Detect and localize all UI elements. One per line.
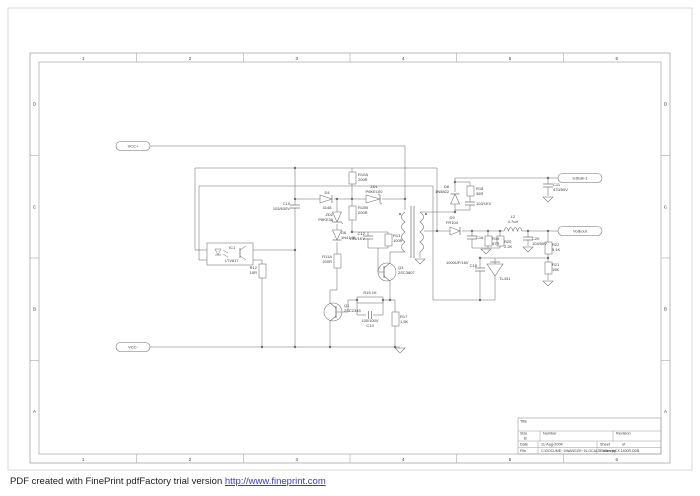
component-label-D9: FR104	[446, 220, 459, 225]
component-label-TL431: TL431	[499, 276, 511, 281]
zone-row-right: A	[664, 409, 667, 414]
port-vcc-plus: VCC+	[116, 142, 150, 151]
component-label-R17: 1.5K	[400, 319, 409, 324]
component-label-R11A: 200R	[322, 259, 332, 264]
component-label-IC1: IC1	[229, 245, 236, 250]
zone-col-top: 4	[402, 56, 405, 61]
component-label-R15: R15 1K	[363, 290, 377, 295]
component-label-Q3: 2SC3807	[398, 270, 415, 275]
zone-col-bottom: 4	[402, 457, 405, 462]
component-label-IC1v: LTV817	[225, 258, 239, 263]
zone-col-top: 1	[82, 56, 85, 61]
ground-symbol	[395, 348, 405, 353]
component-label-R19: 47R	[492, 241, 499, 246]
component-label-ZD1: P6KE100	[366, 189, 384, 194]
size-value: B	[524, 436, 527, 441]
port-out-stab: IcStab-1	[558, 174, 602, 183]
file-label: File	[520, 449, 526, 453]
component-label-L2: 4.7uH	[508, 219, 519, 224]
zone-col-bottom: 2	[189, 457, 192, 462]
component-label-Q1: 2SC2345	[344, 308, 361, 313]
component-label-R12: 10R	[250, 270, 257, 275]
resistor-R13	[385, 234, 392, 246]
resistor-R21	[545, 262, 552, 274]
component-label-R18: 36R	[476, 191, 483, 196]
date-label: Date	[520, 443, 528, 447]
component-label-C11: 470/50V	[553, 187, 568, 192]
schematic-sheet: 112233445566DDCCBBAATitleSizeBNumberRevi…	[0, 0, 700, 496]
capacitor-Csnub	[465, 202, 475, 205]
zone-col-bottom: 1	[82, 457, 85, 462]
footer: PDF created with FinePrint pdfFactory tr…	[10, 476, 326, 487]
component-label-ZD2: P6KE30	[318, 217, 333, 222]
inductor-L2	[504, 228, 522, 232]
zone-col-top: 2	[189, 56, 192, 61]
resistor-R15	[357, 297, 383, 303]
component-label-C16v: 1000UF/16V	[446, 260, 469, 265]
zone-row-left: C	[33, 204, 37, 209]
component-label-Csnub: 103/1KV	[476, 201, 492, 206]
ground-symbol	[523, 247, 533, 252]
component-label-C20: 104/50V	[532, 241, 547, 246]
zone-col-bottom: 6	[615, 457, 618, 462]
sheet-label: Sheet	[600, 443, 611, 447]
component-label-C12: 103/1KV	[350, 236, 366, 241]
port-out-volt: VolEout	[558, 227, 602, 236]
component-label-R20: 2.2K	[504, 244, 513, 249]
ground-symbol	[543, 281, 553, 286]
zone-col-top: 6	[615, 56, 618, 61]
of-label: of	[622, 443, 626, 447]
title-label: Title	[520, 420, 527, 424]
ground-symbol	[415, 259, 425, 264]
diode-D8	[451, 194, 460, 204]
zone-row-left: D	[33, 102, 37, 107]
tl431-shunt-ref	[487, 262, 503, 276]
revision-label: Revision	[616, 432, 631, 436]
component-label-D4: D4	[324, 190, 330, 195]
zone-row-left: A	[33, 409, 36, 414]
component-label-R10B: 200R	[358, 210, 368, 215]
zone-col-top: 5	[509, 56, 512, 61]
drawn-by-label: Drawn by	[600, 449, 616, 453]
zone-row-right: B	[664, 307, 667, 312]
resistor-R17	[392, 312, 399, 326]
component-label-C10: 103/630V	[273, 206, 290, 211]
capacitor-C10	[290, 205, 300, 208]
drawing-frame: 112233445566DDCCBBAA	[30, 53, 670, 463]
zone-row-right: C	[664, 204, 668, 209]
diode-ZD1	[366, 194, 382, 204]
port-vcc-minus: VCC-	[116, 343, 150, 352]
file-value: C:\DOCUME~1\WANGZH~1\LOCALS~1\Temp\CX-14…	[541, 449, 640, 453]
ground-symbol	[543, 197, 553, 202]
zone-col-bottom: 3	[295, 457, 298, 462]
ground-symbol	[481, 249, 491, 254]
port-label: IcStab-1	[573, 176, 589, 181]
title-block: TitleSizeBNumberRevisionDate11-Aug-2004S…	[518, 418, 661, 454]
component-label-C16: C16	[476, 235, 484, 240]
component-label-D8: 1N5822	[435, 189, 450, 194]
resistor-R18	[467, 186, 474, 196]
component-label-R10A: 200R	[358, 177, 368, 182]
resistor-R10B	[349, 206, 356, 220]
component-label-D4v: 4148	[323, 205, 333, 210]
component-label-R22: 5.1K	[552, 247, 561, 252]
number-label: Number	[543, 432, 557, 436]
component-label-R13: 100R	[393, 238, 403, 243]
resistor-R11A	[334, 254, 341, 268]
resistor-R10A	[349, 172, 356, 184]
date-value: 11-Aug-2004	[541, 443, 563, 447]
port-label: VolEout	[573, 229, 588, 234]
zone-row-right: D	[664, 102, 668, 107]
component-label-C13: C13	[366, 323, 374, 328]
pdf-page: 112233445566DDCCBBAATitleSizeBNumberRevi…	[0, 0, 700, 496]
zone-row-left: B	[33, 307, 36, 312]
capacitor-C18	[475, 268, 485, 271]
resistor-R19	[485, 236, 492, 246]
component-label-R21: 15K	[552, 267, 559, 272]
fineprint-link[interactable]: http://www.fineprint.com	[225, 476, 326, 487]
component-label-C18: C18	[470, 263, 478, 268]
port-label: VCC-	[128, 345, 138, 350]
diode-D9	[450, 227, 460, 235]
diode-D4	[320, 195, 332, 203]
zone-col-bottom: 5	[509, 457, 512, 462]
resistor-R12	[259, 264, 266, 278]
diode-ZD2	[332, 212, 343, 224]
zone-col-top: 3	[295, 56, 298, 61]
footer-text: PDF created with FinePrint pdfFactory tr…	[10, 476, 225, 487]
capacitor-C11	[543, 184, 553, 187]
transformer-T1	[399, 206, 427, 258]
port-label: VCC+	[128, 144, 139, 149]
